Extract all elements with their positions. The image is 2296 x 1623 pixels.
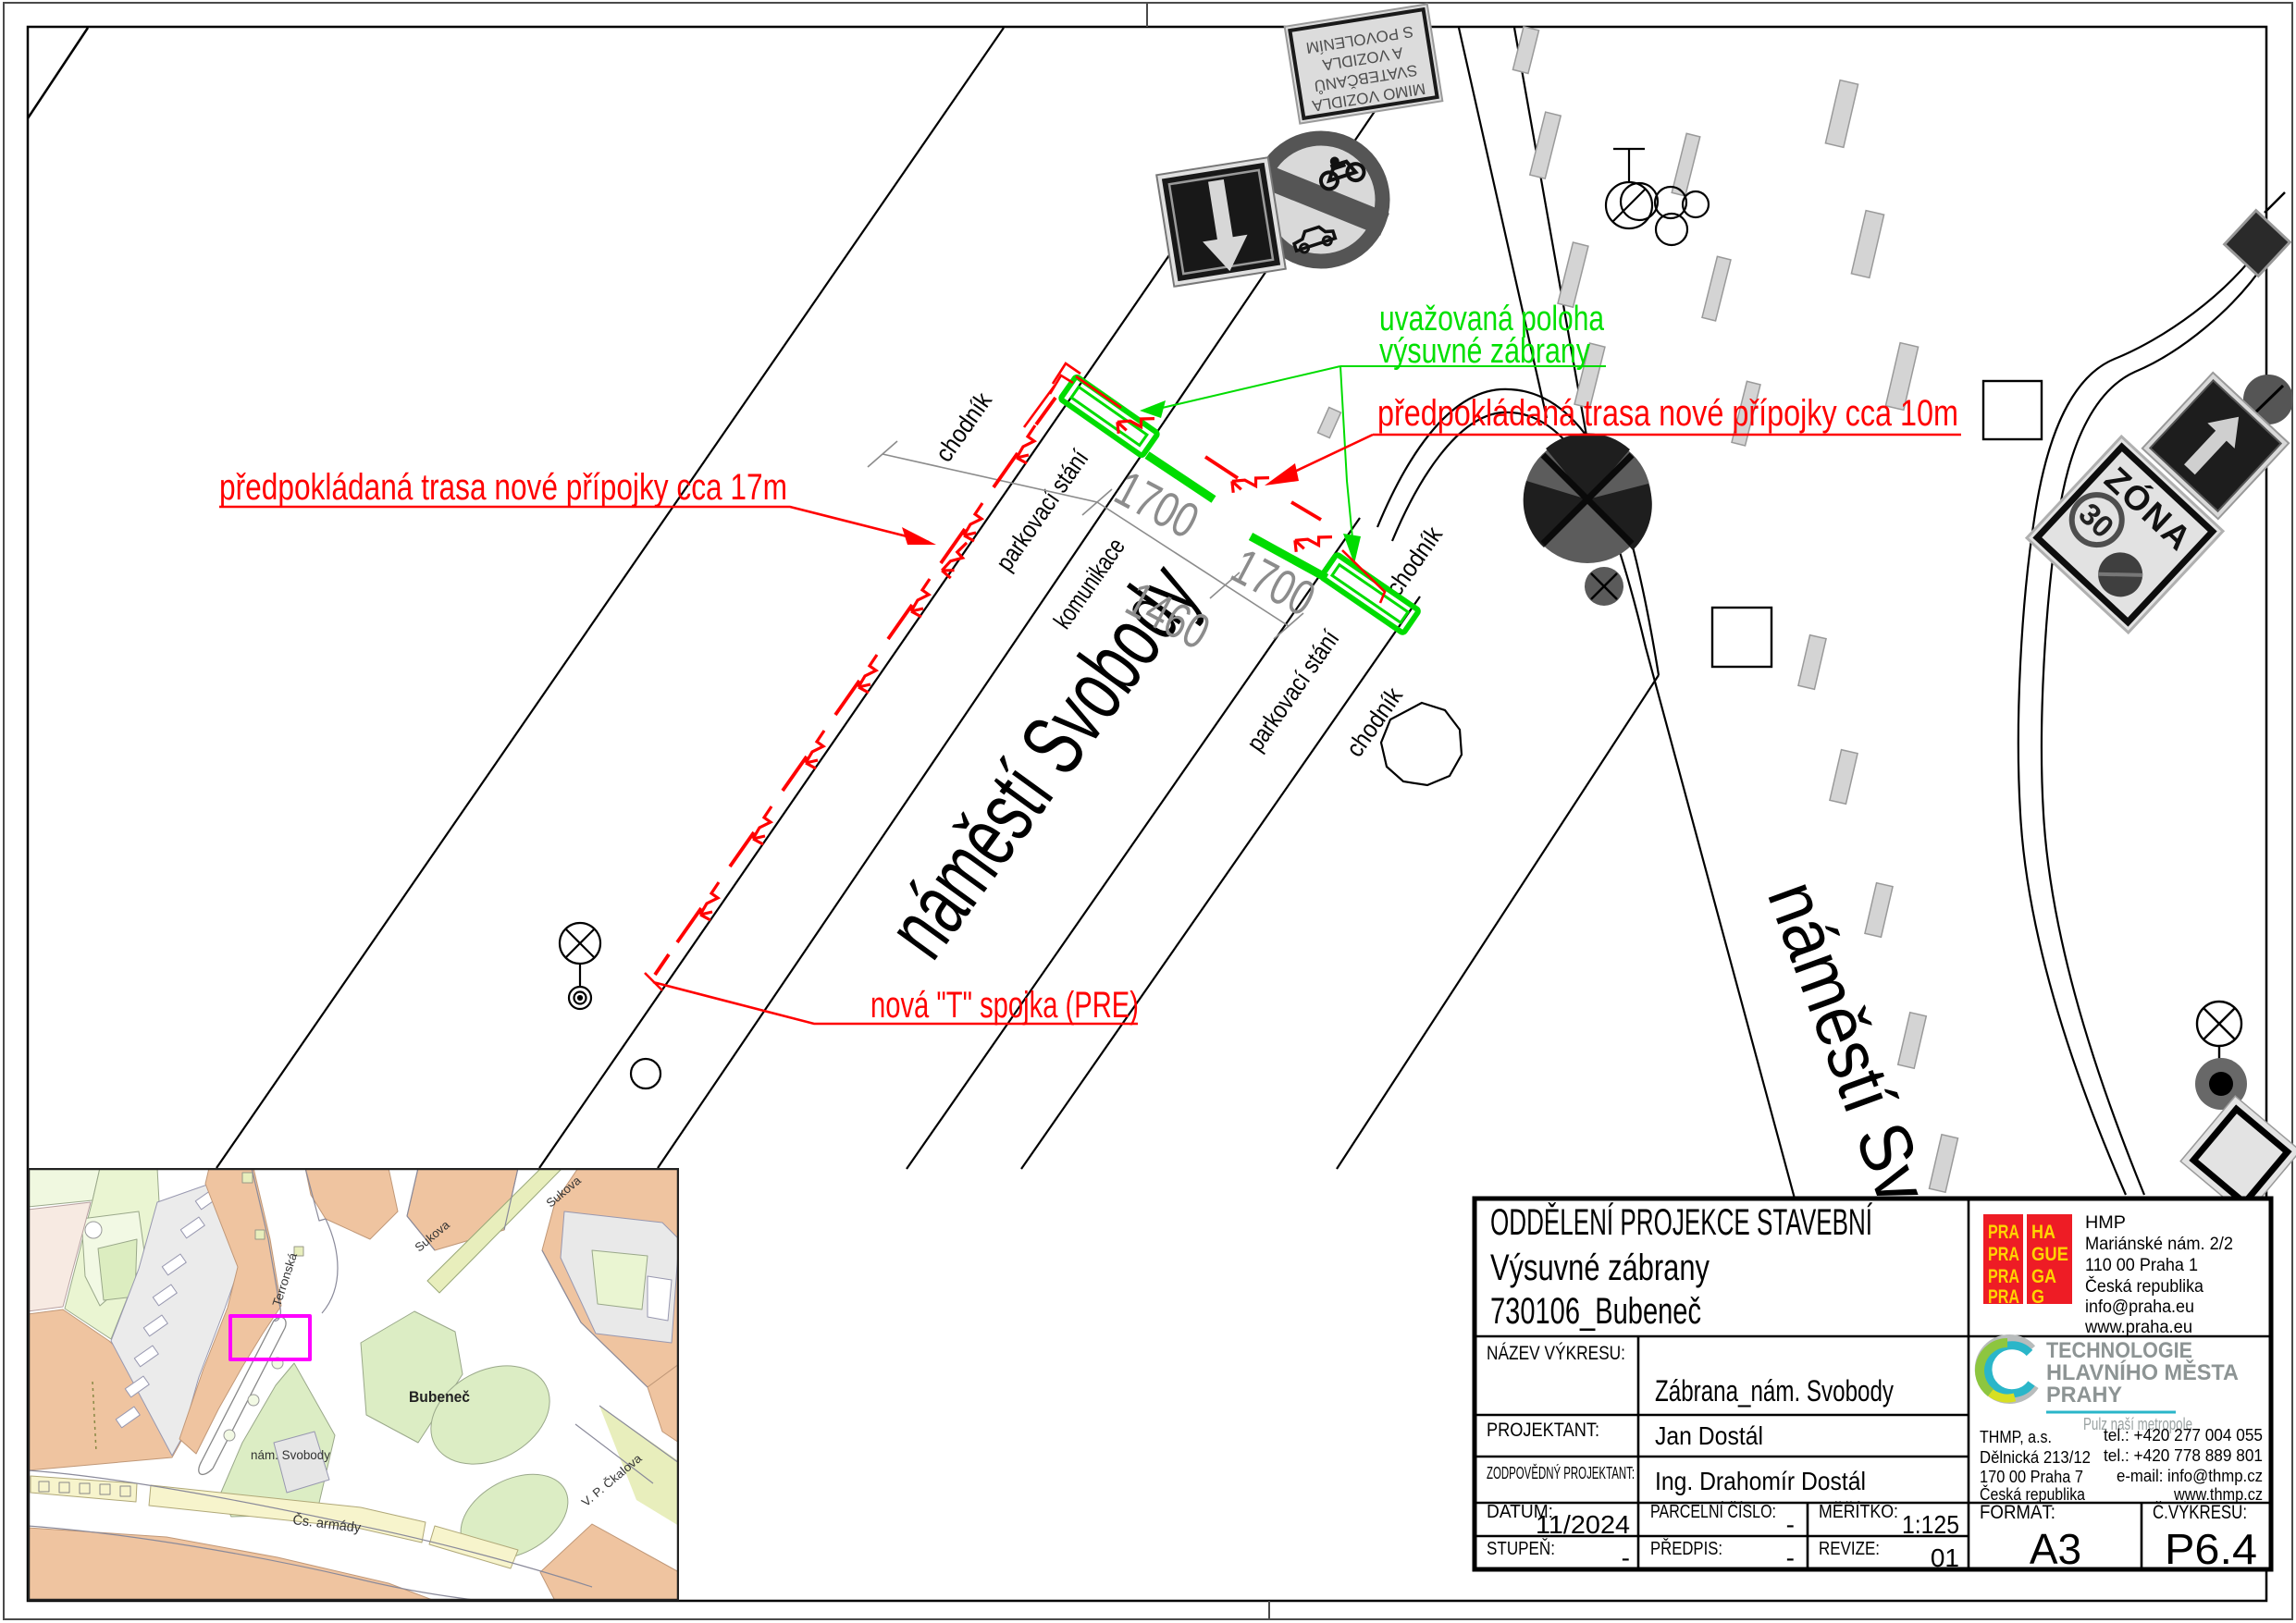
svg-text:01: 01 (1931, 1543, 1959, 1572)
svg-text:NÁZEV VÝKRESU:: NÁZEV VÝKRESU: (1487, 1343, 1625, 1364)
svg-text:FORMÁT:: FORMÁT: (1980, 1502, 2055, 1523)
svg-text:G: G (2031, 1286, 2044, 1308)
svg-text:1:125: 1:125 (1902, 1510, 1959, 1539)
svg-text:Zábrana_nám. Svobody: Zábrana_nám. Svobody (1655, 1374, 1894, 1408)
svg-text:STUPEŇ:: STUPEŇ: (1487, 1538, 1555, 1559)
svg-text:P6.4: P6.4 (2165, 1525, 2257, 1573)
svg-text:TECHNOLOGIE: TECHNOLOGIE (2046, 1338, 2192, 1363)
svg-text:PŘEDPIS:: PŘEDPIS: (1650, 1538, 1722, 1559)
svg-text:www.thmp.cz: www.thmp.cz (2173, 1485, 2263, 1504)
svg-text:PRA: PRA (1988, 1286, 2019, 1308)
svg-text:Výsuvné zábrany: Výsuvné zábrany (1490, 1248, 1710, 1288)
svg-text:Č.VÝKRESU:: Č.VÝKRESU: (2153, 1502, 2247, 1523)
svg-text:170 00 Praha 7: 170 00 Praha 7 (1980, 1468, 2083, 1486)
svg-text:Mariánské nám. 2/2: Mariánské nám. 2/2 (2085, 1235, 2233, 1254)
svg-text:-: - (1622, 1543, 1630, 1572)
svg-text:nová "T" spojka (PRE): nová "T" spojka (PRE) (870, 985, 1139, 1026)
svg-text:tel.: +420 277 004 055: tel.: +420 277 004 055 (2104, 1426, 2263, 1445)
svg-text:HLAVNÍHO MĚSTA: HLAVNÍHO MĚSTA (2046, 1359, 2239, 1385)
svg-text:ODDĚLENÍ PROJEKCE STAVEBNÍ: ODDĚLENÍ PROJEKCE STAVEBNÍ (1490, 1201, 1873, 1243)
svg-text:tel.: +420 778 889 801: tel.: +420 778 889 801 (2104, 1446, 2263, 1465)
svg-text:ZODPOVĚDNÝ PROJEKTANT:: ZODPOVĚDNÝ PROJEKTANT: (1487, 1464, 1635, 1482)
svg-text:-: - (1786, 1543, 1795, 1572)
svg-text:Ing. Drahomír Dostál: Ing. Drahomír Dostál (1655, 1467, 1866, 1495)
svg-text:11/2024: 11/2024 (1536, 1510, 1630, 1539)
svg-text:MĚŘÍTKO:: MĚŘÍTKO: (1819, 1501, 1898, 1522)
svg-text:info@praha.eu: info@praha.eu (2085, 1297, 2194, 1317)
svg-text:PRA: PRA (1988, 1222, 2019, 1243)
svg-text:PRAHY: PRAHY (2046, 1383, 2122, 1408)
svg-text:PRA: PRA (1988, 1266, 2019, 1287)
svg-text:HMP: HMP (2085, 1213, 2126, 1233)
svg-text:REVIZE:: REVIZE: (1819, 1539, 1880, 1559)
svg-text:730106_Bubeneč: 730106_Bubeneč (1490, 1291, 1701, 1332)
svg-text:Česká republika: Česká republika (2085, 1276, 2203, 1297)
svg-text:A3: A3 (2030, 1525, 2081, 1573)
svg-text:GUE: GUE (2031, 1244, 2068, 1265)
svg-text:Česká republika: Česká republika (1980, 1484, 2086, 1504)
svg-text:Dělnická 213/12: Dělnická 213/12 (1980, 1448, 2091, 1467)
svg-text:e-mail: info@thmp.cz: e-mail: info@thmp.cz (2117, 1467, 2263, 1485)
svg-text:nám. Svobody: nám. Svobody (251, 1447, 330, 1462)
svg-text:-: - (1786, 1510, 1795, 1539)
svg-text:výsuvné zábrany: výsuvné zábrany (1379, 332, 1590, 371)
svg-text:www.praha.eu: www.praha.eu (2084, 1318, 2192, 1337)
svg-text:Bubeneč: Bubeneč (409, 1388, 470, 1406)
svg-text:THMP, a.s.: THMP, a.s. (1980, 1428, 2052, 1446)
svg-text:HA: HA (2031, 1222, 2055, 1243)
svg-text:PROJEKTANT:: PROJEKTANT: (1487, 1420, 1599, 1441)
svg-text:předpokládaná trasa nové přípo: předpokládaná trasa nové přípojky cca 17… (219, 467, 787, 508)
svg-text:110 00 Praha 1: 110 00 Praha 1 (2085, 1256, 2198, 1275)
svg-text:předpokládaná trasa nové přípo: předpokládaná trasa nové přípojky cca 10… (1377, 393, 1958, 434)
svg-text:PARCELNÍ ČÍSLO:: PARCELNÍ ČÍSLO: (1650, 1501, 1776, 1522)
svg-text:Jan Dostál: Jan Dostál (1655, 1421, 1763, 1450)
svg-text:GA: GA (2031, 1266, 2056, 1287)
svg-text:PRA: PRA (1988, 1244, 2019, 1265)
